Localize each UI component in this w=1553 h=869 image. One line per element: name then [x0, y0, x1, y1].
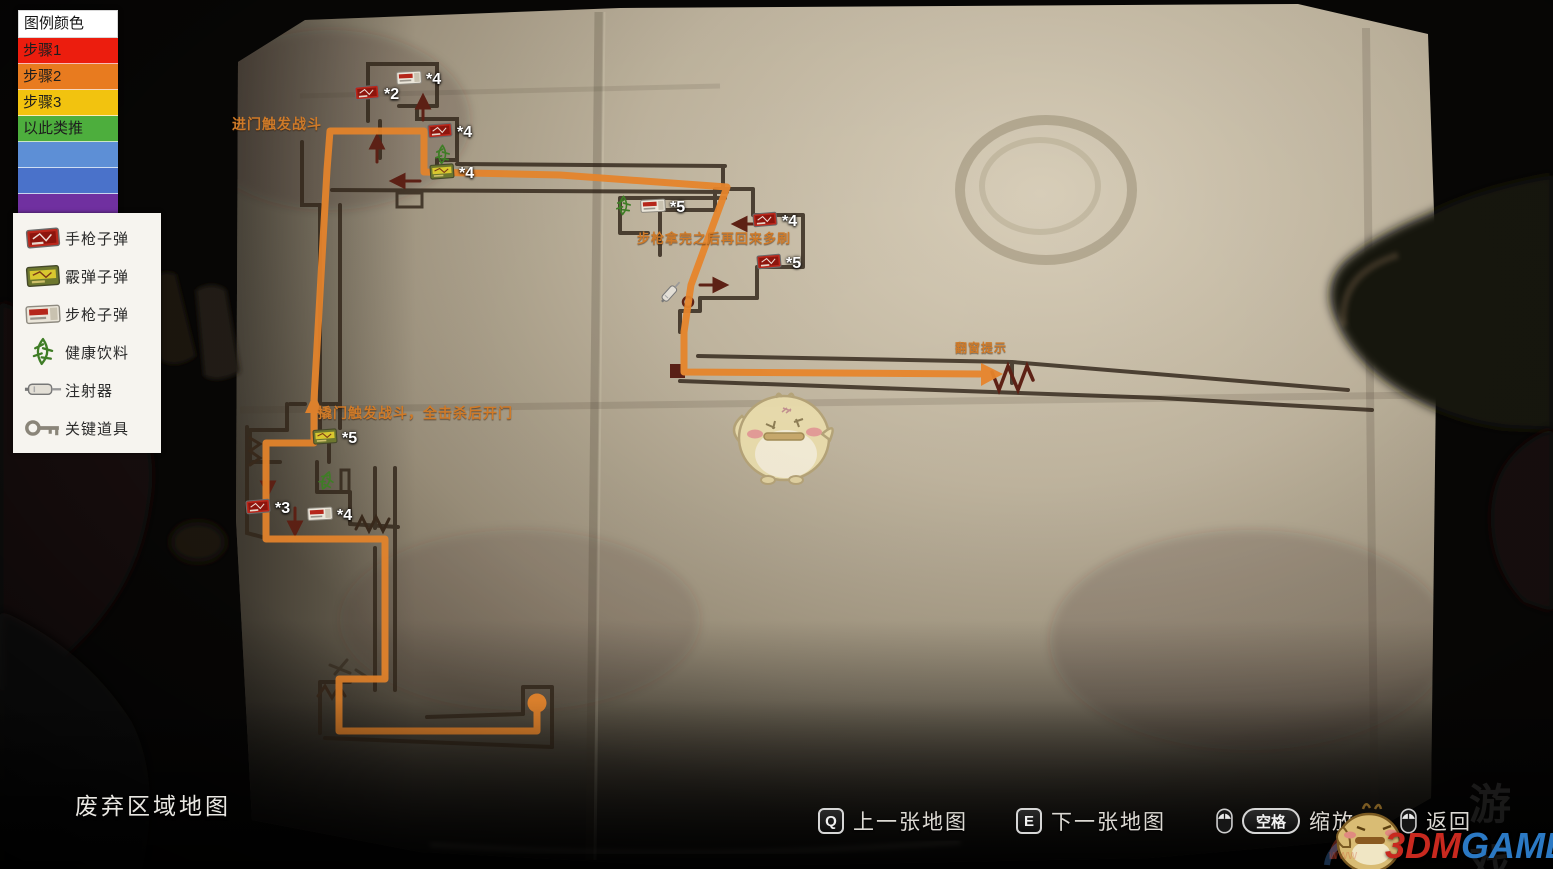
legend-item-label: 关键道具 [65, 418, 129, 439]
legend-item-label: 健康饮料 [65, 342, 129, 363]
legend-step-4: 以此类推 [18, 116, 118, 142]
hint-label: 缩放 [1309, 806, 1355, 836]
keycap-空格: 空格 [1242, 808, 1300, 834]
game-map-screen: 图例颜色 步骤1步骤2步骤3以此类推 手枪子弹霰弹子弹步枪子弹健康饮料注射器关键… [0, 0, 1553, 869]
legend-item-label: 手枪子弹 [65, 228, 129, 249]
map-title: 废弃区域地图 [75, 787, 231, 821]
hint-缩放[interactable]: 空格缩放 [1216, 806, 1355, 836]
handgun-ammo-icon [24, 225, 62, 251]
legend-items-panel: 手枪子弹霰弹子弹步枪子弹健康饮料注射器关键道具 [13, 213, 161, 453]
keycap-Q: Q [818, 808, 844, 834]
health-drink-icon [30, 336, 56, 368]
legend-item-syringe: 注射器 [13, 371, 161, 409]
legend-item-label: 霰弹子弹 [65, 266, 129, 287]
legend-item-key-item: 关键道具 [13, 409, 161, 447]
hint-label: 下一张地图 [1051, 806, 1166, 836]
map-annotation-4: 撬门触发战斗，全击杀后开门 [318, 403, 513, 423]
bottom-shade [0, 700, 1553, 869]
keycap-E: E [1016, 808, 1042, 834]
legend-step-6 [18, 168, 118, 194]
legend-step-2: 步骤2 [18, 64, 118, 90]
mouse-icon [1216, 808, 1233, 834]
legend-item-handgun-ammo: 手枪子弹 [13, 219, 161, 257]
legend-item-health-drink: 健康饮料 [13, 333, 161, 371]
legend-step-3: 步骤3 [18, 90, 118, 116]
legend-item-label: 注射器 [65, 380, 113, 401]
key-item-icon [24, 415, 62, 441]
map-annotation-1: 进门触发战斗 [232, 114, 322, 134]
map-annotation-3: 翻窗提示 [955, 339, 1007, 356]
hint-返回[interactable]: 返回 [1400, 806, 1472, 836]
map-annotation-2: 步枪拿完之后再回来多刷 [637, 228, 791, 247]
legend-item-label: 步枪子弹 [65, 304, 129, 325]
hint-label: 返回 [1426, 806, 1472, 836]
legend-step-5 [18, 142, 118, 168]
legend-item-rifle-ammo: 步枪子弹 [13, 295, 161, 333]
legend-step-1: 步骤1 [18, 38, 118, 64]
legend-item-shotgun-ammo: 霰弹子弹 [13, 257, 161, 295]
hint-上一张地图[interactable]: Q上一张地图 [818, 806, 968, 836]
hint-label: 上一张地图 [853, 806, 968, 836]
shotgun-ammo-icon [24, 263, 62, 289]
hint-下一张地图[interactable]: E下一张地图 [1016, 806, 1166, 836]
legend-steps: 步骤1步骤2步骤3以此类推 [18, 38, 118, 220]
mouse-icon [1400, 808, 1417, 834]
rifle-ammo-icon [24, 301, 62, 327]
syringe-icon [24, 377, 62, 403]
legend-colors-panel: 图例颜色 步骤1步骤2步骤3以此类推 [18, 10, 118, 220]
legend-title: 图例颜色 [18, 10, 118, 38]
